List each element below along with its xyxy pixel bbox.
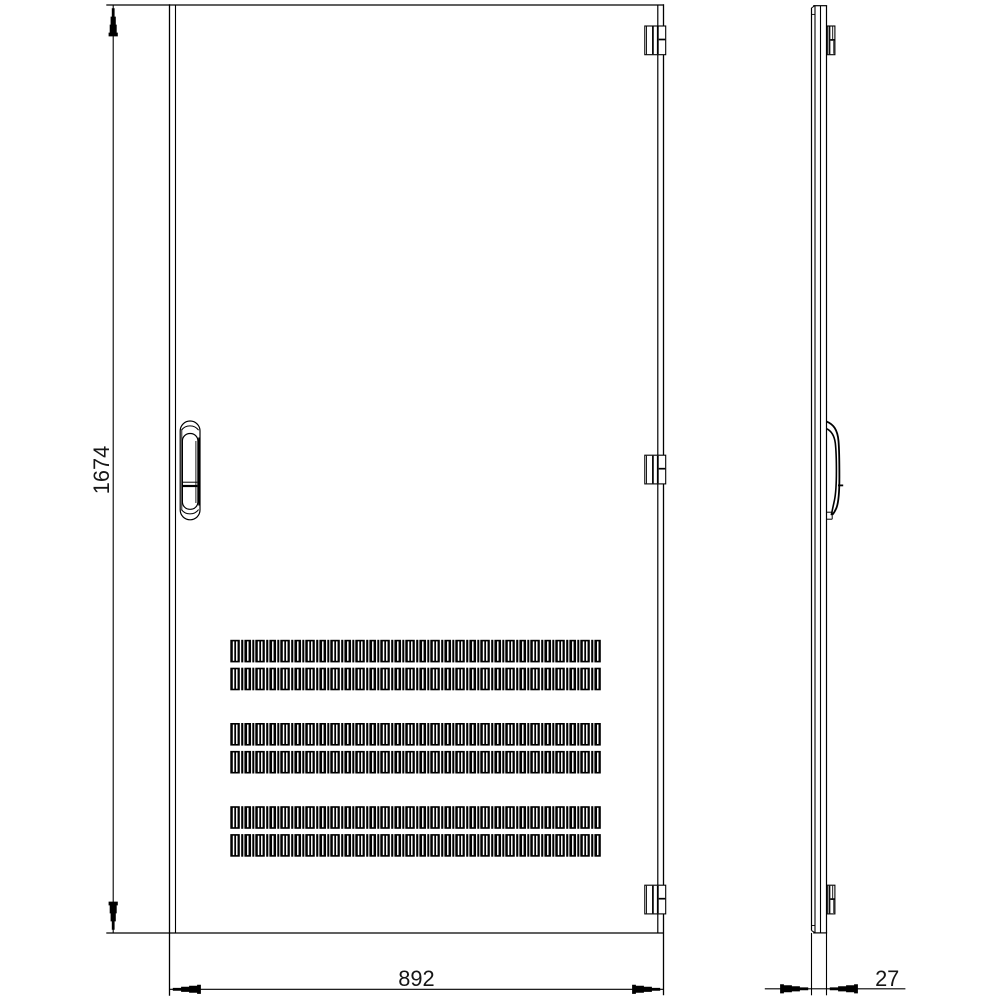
svg-text:892: 892 — [398, 966, 434, 991]
svg-text:1674: 1674 — [89, 446, 114, 495]
svg-text:27: 27 — [875, 966, 899, 991]
